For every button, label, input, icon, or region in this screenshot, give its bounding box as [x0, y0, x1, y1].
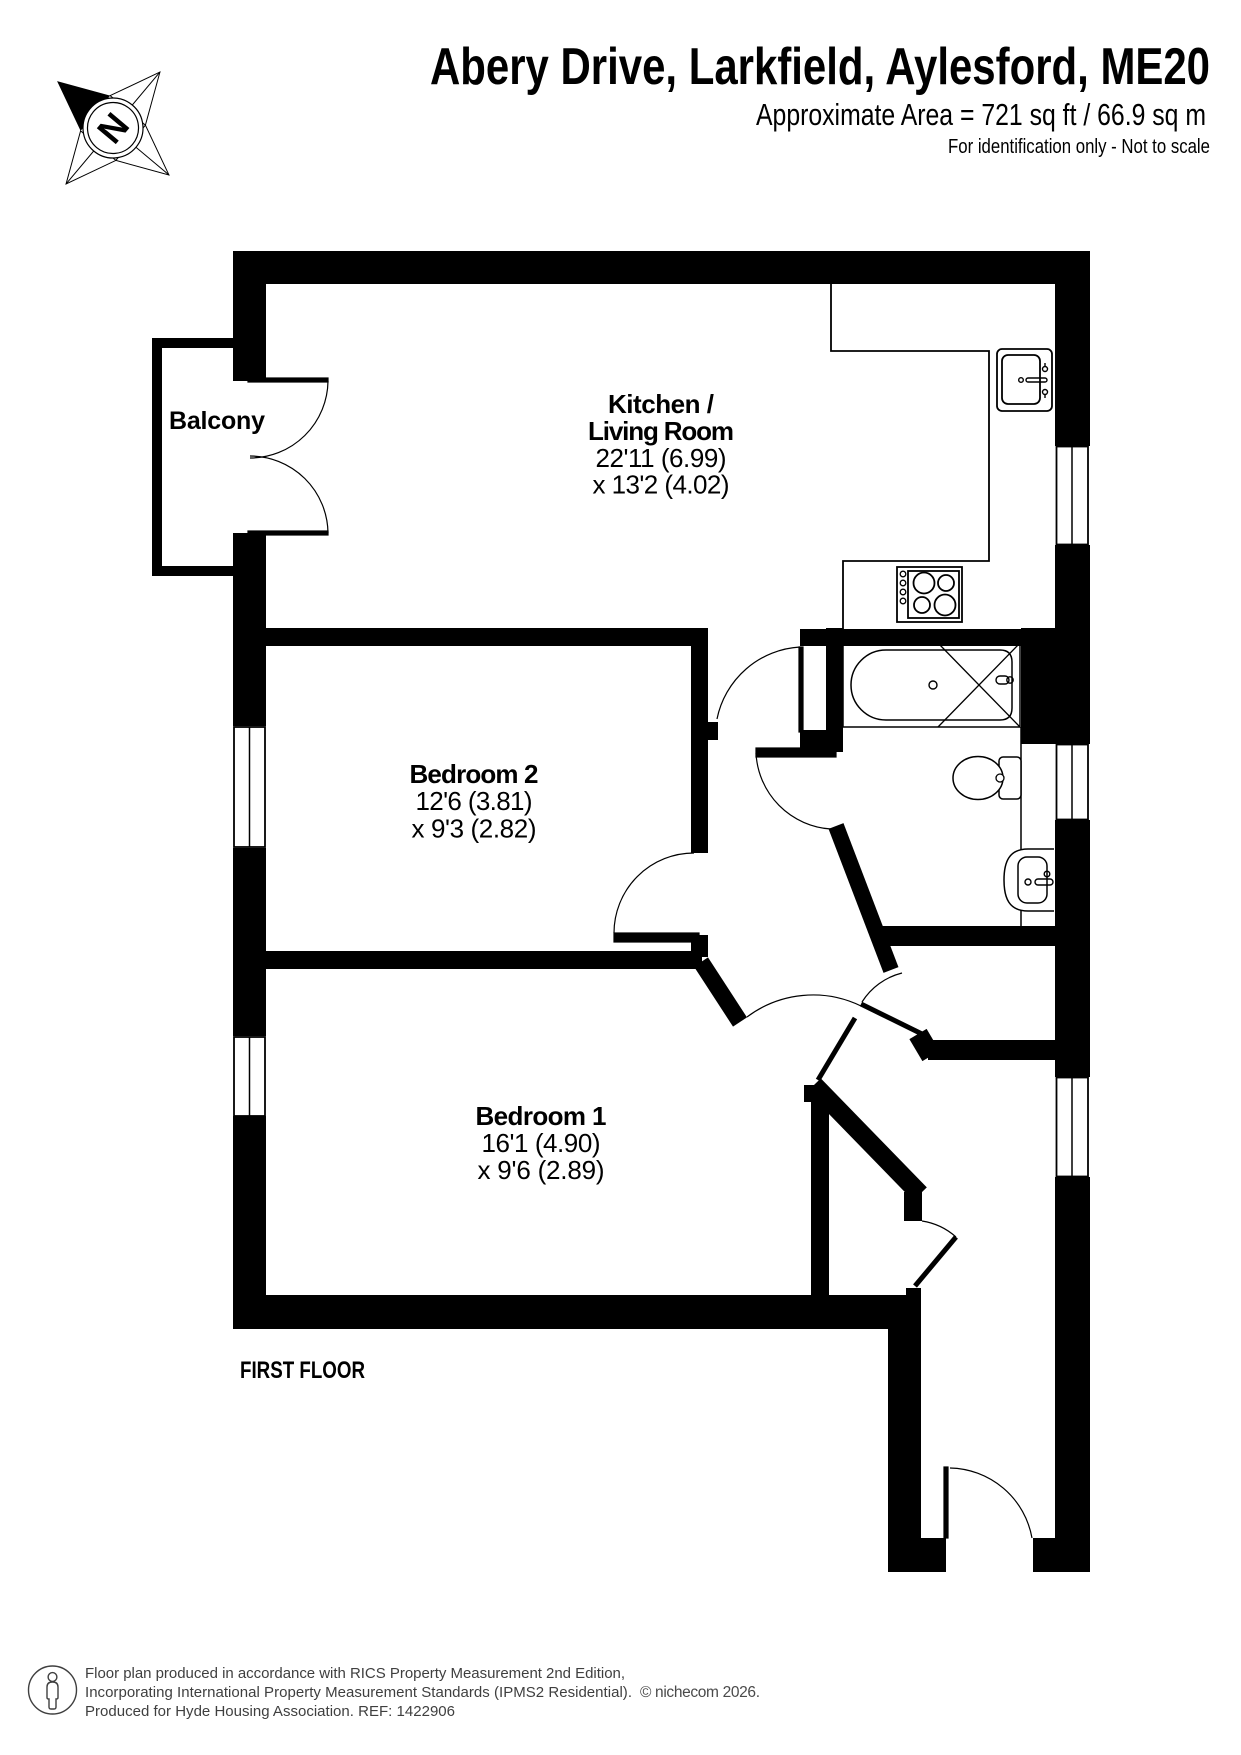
svg-text:Floor plan produced in accorda: Floor plan produced in accordance with R…	[85, 1665, 625, 1682]
svg-text:Incorporating International Pr: Incorporating International Property Mea…	[85, 1684, 632, 1701]
svg-text:Living Room: Living Room	[588, 416, 734, 446]
svg-text:22'11 (6.99): 22'11 (6.99)	[596, 443, 727, 473]
svg-text:Approximate Area = 721 sq ft /: Approximate Area = 721 sq ft / 66.9 sq m	[756, 98, 1206, 132]
svg-text:12'6 (3.81): 12'6 (3.81)	[416, 786, 533, 816]
svg-text:Balcony: Balcony	[169, 407, 265, 435]
svg-text:x 9'3 (2.82): x 9'3 (2.82)	[412, 814, 537, 844]
svg-text:Bedroom 1: Bedroom 1	[476, 1101, 607, 1131]
svg-text:x 13'2 (4.02): x 13'2 (4.02)	[593, 470, 730, 500]
svg-text:Bedroom 2: Bedroom 2	[410, 759, 539, 789]
svg-text:© nichecom 2026.: © nichecom 2026.	[640, 1684, 760, 1701]
svg-text:16'1 (4.90): 16'1 (4.90)	[482, 1128, 601, 1158]
svg-text:Kitchen /: Kitchen /	[608, 389, 714, 419]
svg-text:For identification only - Not: For identification only - Not to scale	[948, 135, 1210, 158]
svg-text:Produced for Hyde Housing Asso: Produced for Hyde Housing Association. R…	[85, 1703, 455, 1720]
svg-text:FIRST FLOOR: FIRST FLOOR	[240, 1357, 365, 1384]
svg-text:Abery Drive, Larkfield, Aylesf: Abery Drive, Larkfield, Aylesford, ME20	[430, 38, 1210, 96]
svg-text:x 9'6 (2.89): x 9'6 (2.89)	[478, 1155, 605, 1185]
